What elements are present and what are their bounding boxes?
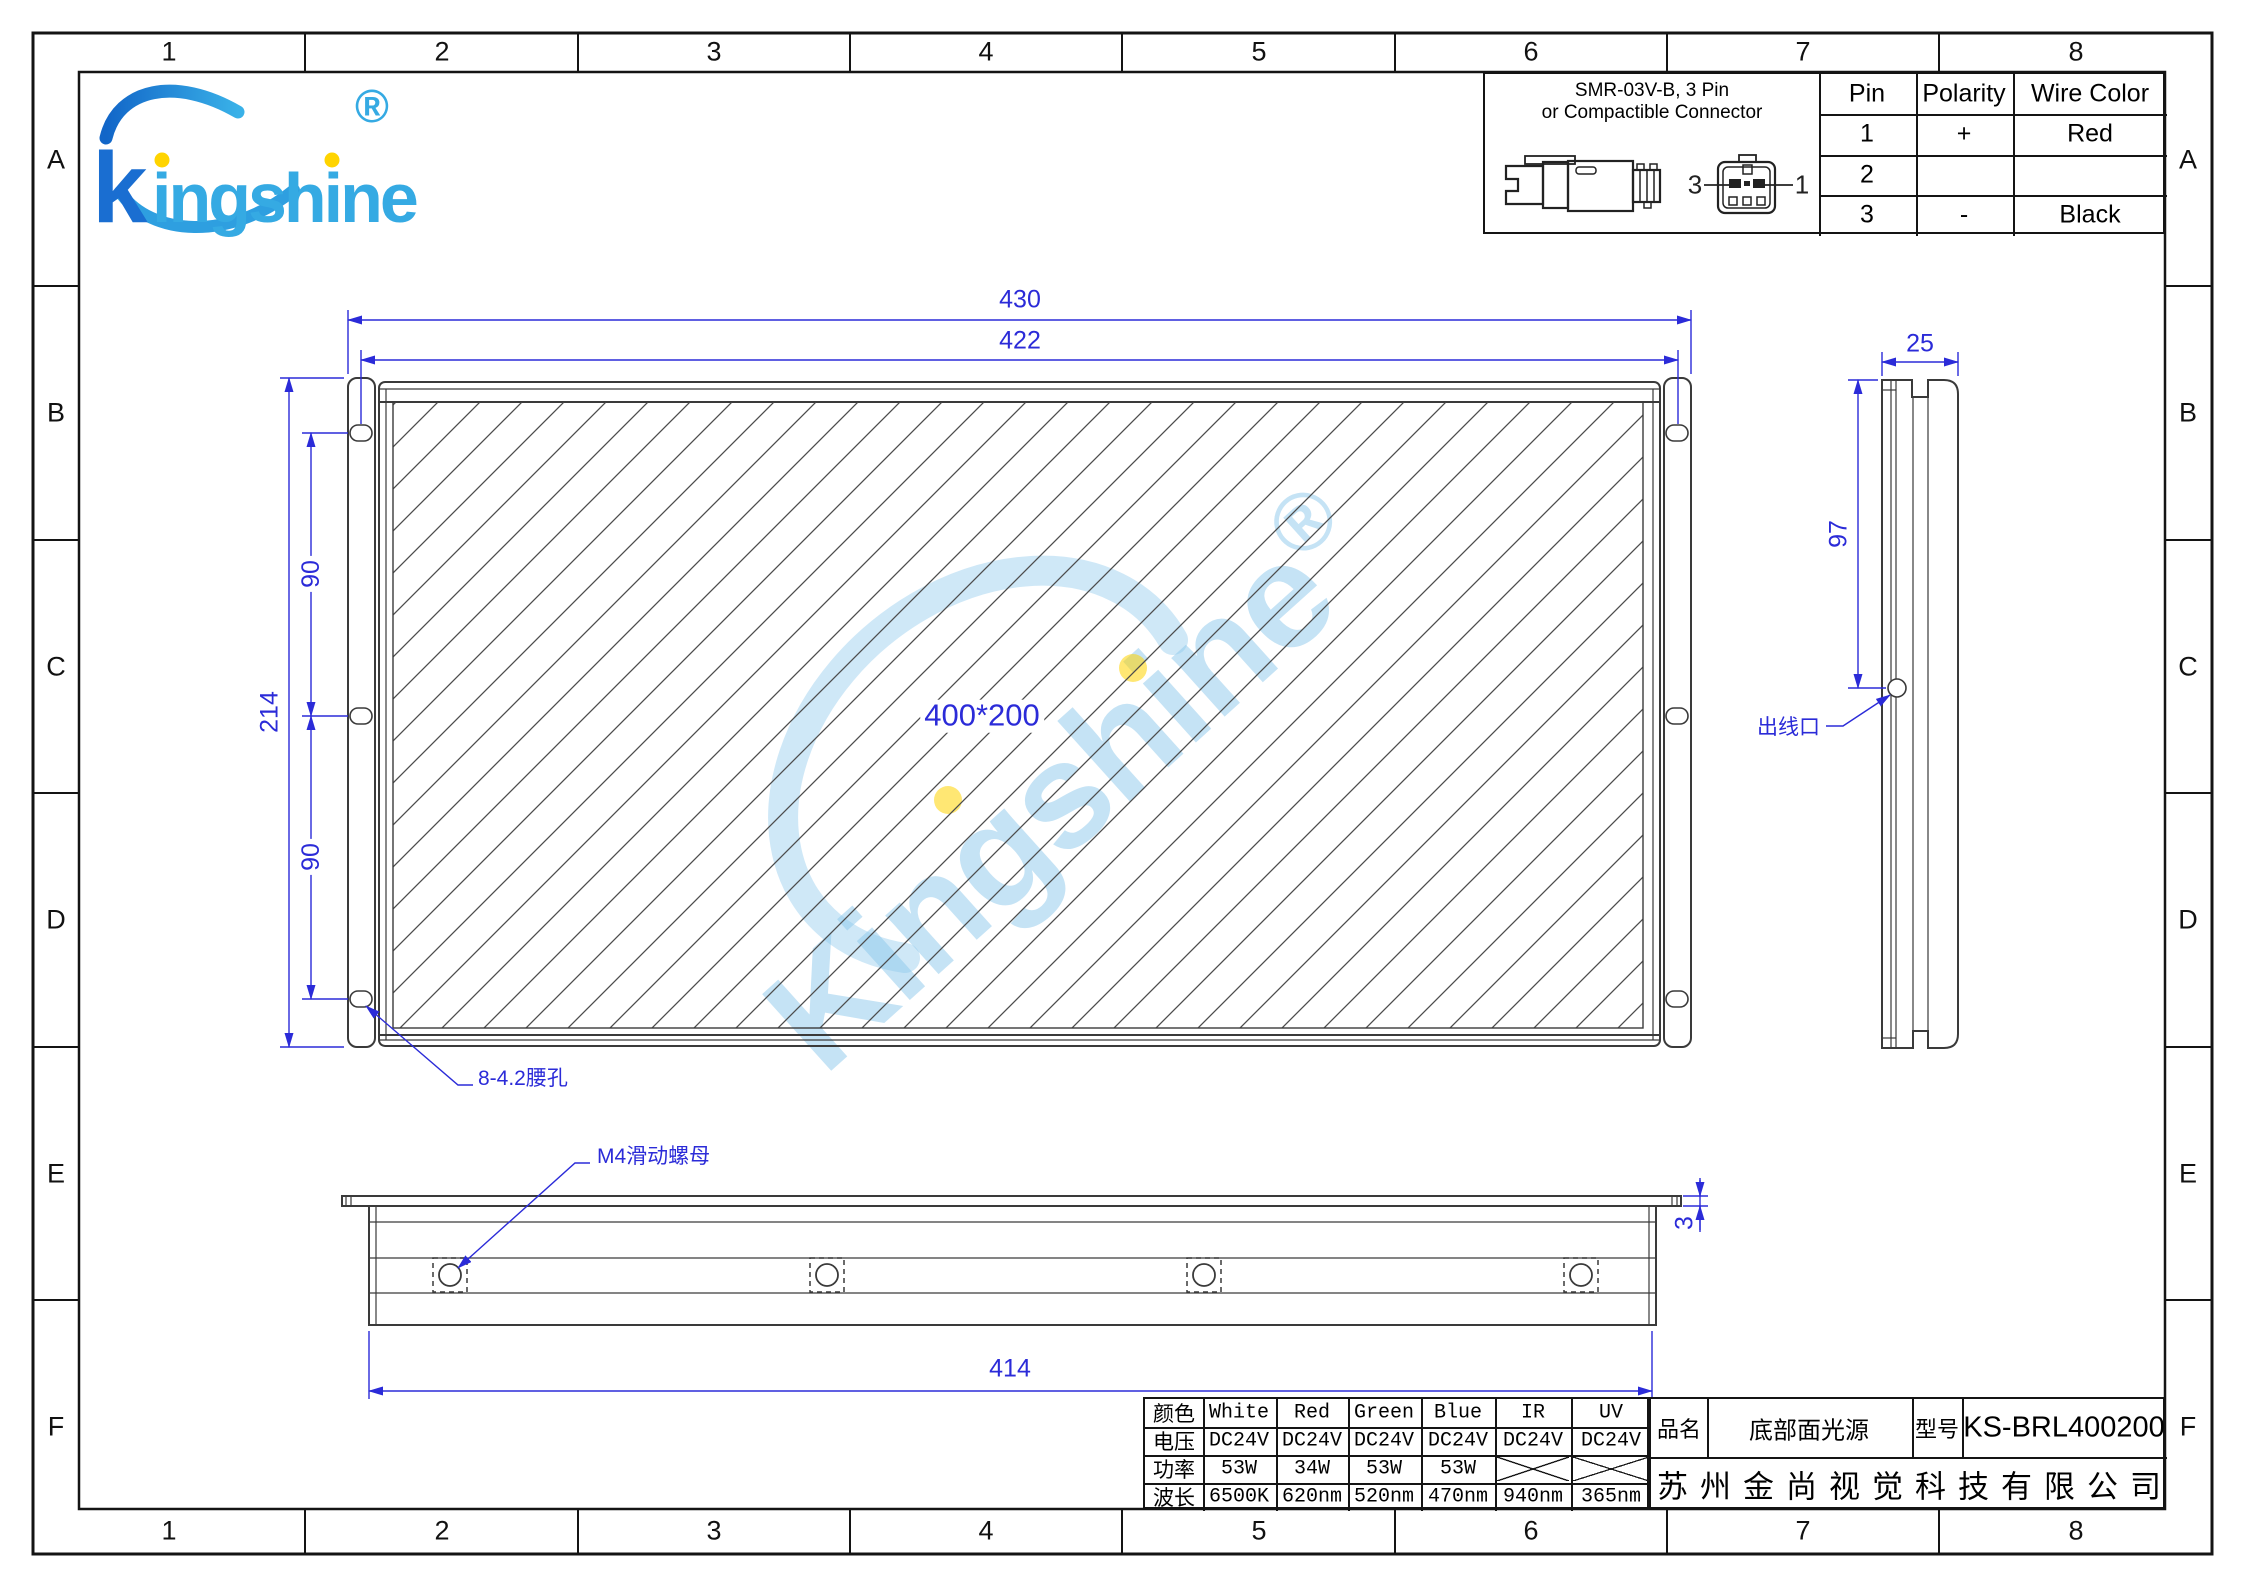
spec-table: 颜色 电压 功率 波长 White Red Green Blue IR UV D… — [1143, 1397, 1649, 1509]
model-value: KS-BRL400200 — [1963, 1412, 2165, 1445]
dim-3: 3 — [1671, 1216, 1700, 1230]
grid-row-left-E: E — [47, 1159, 65, 1190]
spec-col-ir: IR — [1521, 1402, 1545, 1425]
spec-header-wavelength: 波长 — [1153, 1482, 1195, 1512]
spec-header-color: 颜色 — [1153, 1398, 1195, 1428]
logo-registered-icon: ® — [355, 80, 389, 132]
spec-col-white: White — [1209, 1402, 1269, 1425]
polarity-1: + — [1957, 120, 1972, 149]
polarity-3: - — [1960, 201, 1968, 230]
product-name-value: 底部面光源 — [1749, 1411, 1869, 1446]
grid-col-bottom-1: 1 — [161, 1516, 176, 1547]
grid-row-left-B: B — [47, 398, 65, 429]
connector-panel: SMR-03V-B, 3 Pin or Compactible Connecto… — [1483, 72, 2165, 234]
wirecolor-3: Black — [2059, 201, 2120, 230]
dim-214: 214 — [256, 691, 285, 733]
grid-row-right-F: F — [2180, 1412, 2197, 1443]
polarity-header: Polarity — [1922, 80, 2005, 109]
emitting-area-label: 400*200 — [920, 700, 1044, 733]
logo-dot-i1 — [155, 153, 170, 168]
body-profile — [369, 1206, 1656, 1325]
face-pin1-label: 1 — [1795, 170, 1809, 201]
mount-plate — [342, 1196, 1681, 1206]
nut-callout: M4滑动螺母 — [597, 1140, 710, 1170]
grid-col-bottom-2: 2 — [434, 1516, 449, 1547]
grid-col-bottom-3: 3 — [706, 1516, 721, 1547]
grid-col-top-3: 3 — [706, 37, 721, 68]
grid-col-bottom-8: 8 — [2068, 1516, 2083, 1547]
grid-col-top-2: 2 — [434, 37, 449, 68]
logo-swoosh-top — [106, 91, 238, 138]
kingshine-logo: k ingshine ® — [92, 80, 417, 244]
grid-col-top-5: 5 — [1251, 37, 1266, 68]
grid-row-right-E: E — [2179, 1159, 2197, 1190]
wirecolor-header: Wire Color — [2031, 80, 2149, 109]
grid-col-top-8: 8 — [2068, 37, 2083, 68]
grid-row-left-D: D — [46, 905, 66, 936]
dim-414: 414 — [989, 1355, 1031, 1384]
spec-header-power: 功率 — [1153, 1454, 1195, 1484]
grid-row-right-B: B — [2179, 398, 2197, 429]
grid-row-left-C: C — [46, 652, 66, 683]
grid-col-bottom-5: 5 — [1251, 1516, 1266, 1547]
spec-header-voltage: 电压 — [1153, 1426, 1195, 1456]
company-name: 苏州金尚视觉科技有限公司 — [1657, 1462, 2173, 1507]
grid-col-top-1: 1 — [161, 37, 176, 68]
spec-col-red: Red — [1294, 1402, 1330, 1425]
power-ir-na-cross — [1497, 1457, 1569, 1481]
spec-col-uv: UV — [1599, 1402, 1623, 1425]
logo-text: ingshine — [152, 159, 417, 237]
dim-90-bottom: 90 — [298, 839, 324, 875]
grid-row-right-C: C — [2178, 652, 2198, 683]
model-label: 型号 — [1915, 1412, 1959, 1444]
product-name-label: 品名 — [1657, 1412, 1701, 1444]
spec-col-blue: Blue — [1434, 1402, 1482, 1425]
logo-dot-i2 — [325, 153, 340, 168]
wire-outlet-hole — [1888, 679, 1906, 697]
dim-25: 25 — [1906, 330, 1934, 359]
drawing-linework: k ingshine ® — [0, 0, 2245, 1587]
side-view — [1882, 380, 1958, 1048]
spec-col-green: Green — [1354, 1402, 1414, 1425]
power-uv-na-cross — [1573, 1457, 1649, 1481]
dim-430: 430 — [999, 286, 1041, 315]
pin-2: 2 — [1860, 161, 1874, 190]
wirecolor-1: Red — [2067, 120, 2113, 149]
outlet-callout: 出线口 — [1757, 711, 1820, 741]
grid-col-bottom-4: 4 — [978, 1516, 993, 1547]
grid-col-top-7: 7 — [1795, 37, 1810, 68]
dim-90-top: 90 — [298, 556, 324, 592]
bottom-view — [342, 1196, 1681, 1325]
grid-row-left-A: A — [47, 145, 65, 176]
connector-title: SMR-03V-B, 3 Pin or Compactible Connecto… — [1485, 80, 1819, 124]
pin-header: Pin — [1849, 80, 1885, 109]
grid-col-top-4: 4 — [978, 37, 993, 68]
title-block: 品名 底部面光源 型号 KS-BRL400200 苏州金尚视觉科技有限公司 — [1649, 1397, 2165, 1509]
grid-row-left-F: F — [48, 1412, 65, 1443]
grid-row-right-D: D — [2178, 905, 2198, 936]
grid-col-top-6: 6 — [1523, 37, 1538, 68]
dim-97: 97 — [1825, 520, 1854, 548]
dim-422: 422 — [999, 327, 1041, 356]
pin-1: 1 — [1860, 120, 1874, 149]
grid-col-bottom-7: 7 — [1795, 1516, 1810, 1547]
drawing-sheet: Kingshine® — [0, 0, 2245, 1587]
grid-col-bottom-6: 6 — [1523, 1516, 1538, 1547]
grid-row-right-A: A — [2179, 145, 2197, 176]
slot-callout: 8-4.2腰孔 — [478, 1062, 568, 1092]
face-pin3-label: 3 — [1688, 170, 1702, 201]
logo-k: k — [92, 132, 148, 244]
pin-3: 3 — [1860, 201, 1874, 230]
outlet-leader — [1826, 695, 1890, 726]
